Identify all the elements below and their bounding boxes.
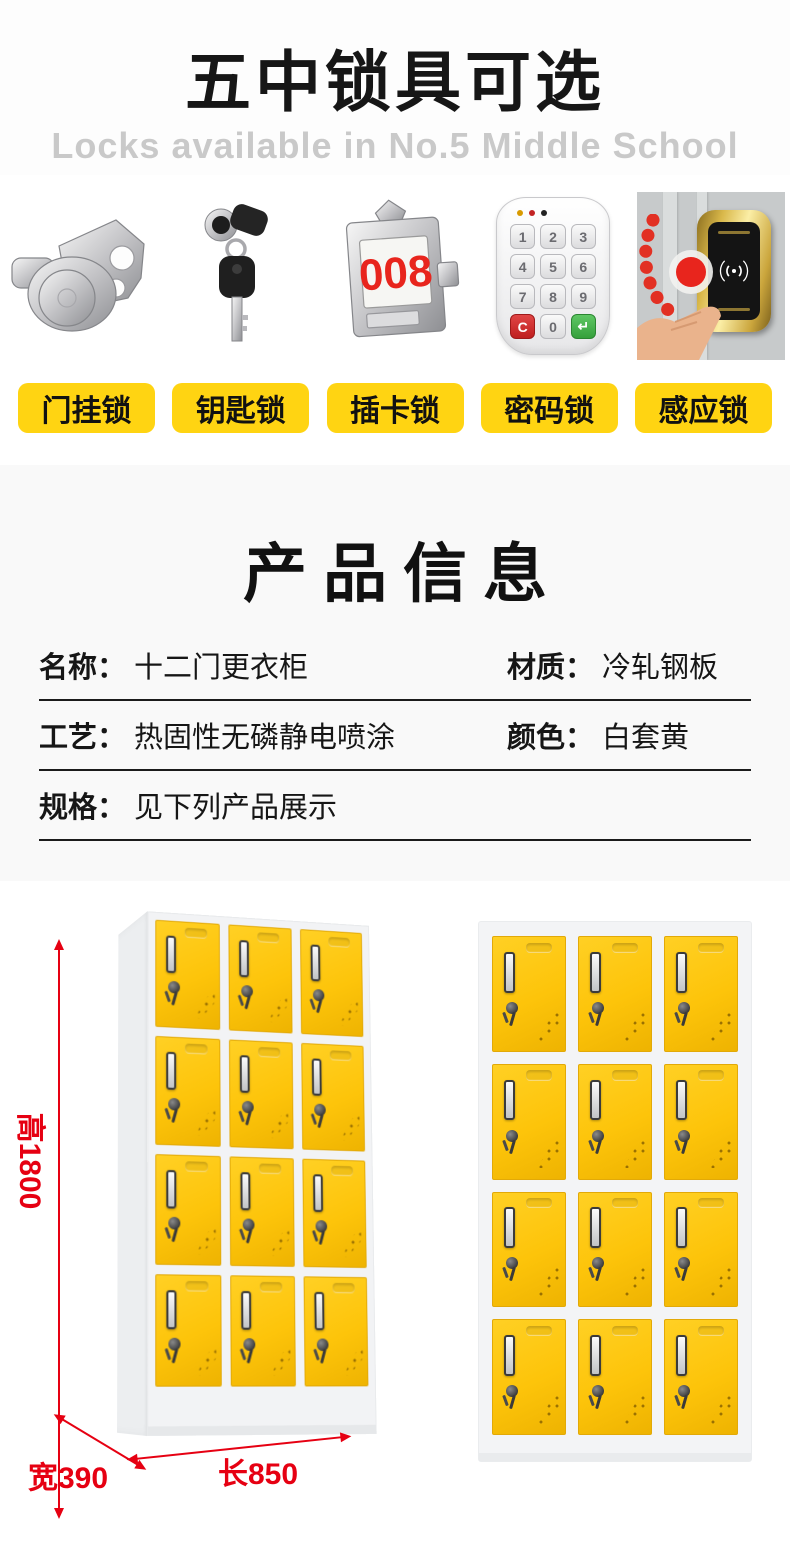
width-dimension-label: 宽390 <box>28 1453 108 1497</box>
lock-option-keypad: 123456789C0↵ <box>474 176 632 376</box>
locker-door <box>578 1064 652 1180</box>
locker-cabinet-3d <box>132 923 356 1434</box>
vent-holes <box>623 1266 646 1296</box>
locker-door <box>155 1036 220 1147</box>
name-card-slot <box>166 1051 176 1090</box>
key-lock-icon <box>181 199 293 354</box>
vent-holes <box>268 1110 288 1138</box>
door-handle-emboss <box>330 1050 352 1060</box>
info-cell-spec: 规格： 见下列产品展示 <box>39 784 507 826</box>
lock-label-induction: 感应锁 <box>635 383 772 433</box>
lock-option-cam <box>0 176 158 376</box>
info-cell-color: 颜色： 白套黄 <box>507 714 751 756</box>
locker-door <box>304 1276 369 1386</box>
door-handle-emboss <box>612 943 638 953</box>
vent-holes <box>623 1139 646 1169</box>
door-handle-emboss <box>612 1326 638 1336</box>
locker-door <box>155 1274 222 1387</box>
name-card-slot <box>676 1207 688 1248</box>
vent-holes <box>340 1113 360 1141</box>
section-title: 产品信息 <box>0 523 790 615</box>
name-card-slot <box>504 1080 516 1121</box>
door-handle-emboss <box>612 1070 638 1080</box>
door-handle-emboss <box>259 1164 281 1174</box>
lock-option-induction <box>632 176 790 376</box>
vent-holes <box>195 1108 215 1136</box>
table-row: 名称： 十二门更衣柜 材质： 冷轧钢板 <box>39 631 751 701</box>
name-card-slot <box>504 1207 516 1248</box>
keyhole-with-key <box>315 1220 327 1233</box>
locker-door <box>492 936 566 1052</box>
keypad-key: 5 <box>540 254 565 279</box>
vent-holes <box>195 991 215 1019</box>
name-card-slot <box>241 1291 251 1330</box>
lock-label-card: 插卡锁 <box>327 383 464 433</box>
locker-door <box>301 1043 365 1152</box>
page-title: 五中锁具可选 <box>0 0 790 119</box>
name-card-slot <box>314 1291 324 1330</box>
keyhole-with-key <box>314 1104 326 1116</box>
keyhole-with-key <box>242 1101 254 1114</box>
door-handle-emboss <box>186 1161 209 1171</box>
keyhole-with-key <box>592 1002 604 1014</box>
header: 五中锁具可选 Locks available in No.5 Middle Sc… <box>0 0 790 175</box>
locker-door <box>492 1064 566 1180</box>
door-handle-emboss <box>526 1198 552 1208</box>
name-card-slot <box>239 1055 249 1093</box>
locker-door <box>228 924 292 1033</box>
info-value: 冷轧钢板 <box>602 644 718 686</box>
name-card-slot <box>590 1207 602 1248</box>
keypad-indicator-lights <box>517 210 547 216</box>
door-handle-emboss <box>526 943 552 953</box>
locker-door <box>155 1154 221 1266</box>
lock-labels-row: 门挂锁 钥匙锁 插卡锁 密码锁 感应锁 <box>0 377 790 439</box>
keyhole-with-key <box>168 981 180 994</box>
keypad-key: 1 <box>510 224 535 249</box>
keypad-lock-icon: 123456789C0↵ <box>496 197 610 355</box>
locker-door <box>664 1319 738 1435</box>
door-handle-emboss <box>698 1326 724 1336</box>
vent-holes <box>537 1139 560 1169</box>
keyhole-with-key <box>592 1385 604 1397</box>
vent-holes <box>709 1011 732 1041</box>
vent-holes <box>709 1139 732 1169</box>
keypad-key: 7 <box>510 284 535 309</box>
locker-door <box>229 1039 294 1149</box>
locker-door <box>664 1064 738 1180</box>
table-row: 工艺： 热固性无磷静电喷涂 颜色： 白套黄 <box>39 701 751 771</box>
door-handle-emboss <box>333 1283 355 1293</box>
lock-option-card: 008 <box>316 176 474 376</box>
product-page: 五中锁具可选 Locks available in No.5 Middle Sc… <box>0 0 790 1567</box>
door-handle-emboss <box>185 928 207 939</box>
height-dimension-label: 高1800 <box>11 1076 55 1246</box>
door-handle-emboss <box>526 1070 552 1080</box>
locker-door <box>230 1275 296 1386</box>
vent-holes <box>709 1394 732 1424</box>
card-lock-icon: 008 <box>320 192 470 360</box>
door-handle-emboss <box>526 1326 552 1336</box>
keyhole-with-key <box>242 1219 254 1232</box>
info-value: 热固性无磷静电喷涂 <box>134 714 395 756</box>
name-card-slot <box>166 1290 176 1330</box>
keypad-key: 8 <box>540 284 565 309</box>
info-label: 工艺： <box>39 714 126 756</box>
keyhole-with-key <box>168 1217 180 1230</box>
keypad-keys: 123456789C0↵ <box>510 224 596 339</box>
keyhole-with-key <box>316 1339 328 1352</box>
product-info-section: 产品信息 名称： 十二门更衣柜 材质： 冷轧钢板 工艺： 热固性无磷静电喷涂 颜… <box>0 465 790 881</box>
info-value: 十二门更衣柜 <box>134 644 308 686</box>
keyhole-with-key <box>678 1385 690 1397</box>
name-card-slot <box>504 1335 516 1376</box>
length-dimension-label: 长850 <box>218 1449 298 1493</box>
name-card-slot <box>590 1080 602 1121</box>
locker-door <box>578 936 652 1052</box>
door-handle-emboss <box>332 1166 354 1176</box>
name-card-slot <box>590 1335 602 1376</box>
keyhole-with-key <box>168 1338 180 1351</box>
locker-door <box>155 920 220 1030</box>
name-card-slot <box>311 1058 321 1096</box>
cabinet-side-panel <box>117 911 147 1436</box>
keyhole-with-key <box>168 1098 180 1111</box>
vent-holes <box>343 1348 363 1376</box>
info-label: 名称： <box>39 644 126 686</box>
info-label: 材质： <box>507 644 594 686</box>
keyhole-with-key <box>592 1130 604 1142</box>
door-handle-emboss <box>185 1044 208 1055</box>
vent-holes <box>196 1347 217 1376</box>
right-cabinet-figure <box>478 921 752 1462</box>
door-handle-emboss <box>698 1198 724 1208</box>
name-card-slot <box>590 952 602 993</box>
locker-door <box>302 1159 366 1268</box>
keyhole-with-key <box>241 985 253 998</box>
vent-holes <box>195 1226 215 1255</box>
lock-option-key <box>158 176 316 376</box>
keypad-key: 9 <box>571 284 596 309</box>
keypad-key: 3 <box>571 224 596 249</box>
vent-holes <box>537 1266 560 1296</box>
door-handle-emboss <box>329 937 351 948</box>
locker-door <box>578 1192 652 1308</box>
keypad-key: ↵ <box>571 314 596 339</box>
left-cabinet-figure <box>128 925 368 1485</box>
card-lock-number: 008 <box>357 246 434 300</box>
left-cabinet-doors <box>155 920 368 1387</box>
locker-door <box>492 1319 566 1435</box>
vent-holes <box>623 1394 646 1424</box>
vent-holes <box>537 1394 560 1424</box>
info-label: 颜色： <box>507 714 594 756</box>
keyhole-with-key <box>678 1257 690 1269</box>
height-dimension-arrow <box>58 945 60 1513</box>
right-cabinet-doors <box>492 936 738 1435</box>
keypad-key: 0 <box>540 314 565 339</box>
name-card-slot <box>166 1169 176 1208</box>
lock-options-row: 008 123456789C0↵ <box>0 175 790 377</box>
vent-holes <box>267 995 287 1023</box>
keyhole-with-key <box>506 1002 518 1014</box>
vent-holes <box>537 1011 560 1041</box>
vent-holes <box>269 1228 289 1256</box>
door-handle-emboss <box>258 932 280 943</box>
lock-label-cam: 门挂锁 <box>18 383 155 433</box>
locker-door <box>578 1319 652 1435</box>
name-card-slot <box>239 940 249 978</box>
name-card-slot <box>504 952 516 993</box>
door-handle-emboss <box>186 1281 209 1291</box>
cam-lock-icon <box>4 206 154 346</box>
cabinet-front-panel <box>147 911 377 1436</box>
door-handle-emboss <box>260 1282 283 1292</box>
info-cell-craft: 工艺： 热固性无磷静电喷涂 <box>39 714 507 756</box>
keyhole-with-key <box>312 989 323 1001</box>
name-card-slot <box>676 1080 688 1121</box>
name-card-slot <box>313 1174 323 1212</box>
keyhole-with-key <box>678 1002 690 1014</box>
door-handle-emboss <box>698 1070 724 1080</box>
keyhole-with-key <box>243 1338 255 1351</box>
locker-door <box>300 929 363 1037</box>
name-card-slot <box>166 935 176 973</box>
locker-door <box>664 1192 738 1308</box>
vent-holes <box>339 999 359 1027</box>
name-card-slot <box>240 1172 250 1211</box>
keypad-key: C <box>510 314 535 339</box>
page-subtitle: Locks available in No.5 Middle School <box>0 125 790 167</box>
name-card-slot <box>676 1335 688 1376</box>
lock-label-key: 钥匙锁 <box>172 383 309 433</box>
keypad-key: 2 <box>540 224 565 249</box>
keyhole-with-key <box>506 1385 518 1397</box>
name-card-slot <box>310 944 320 981</box>
keyhole-with-key <box>506 1130 518 1142</box>
info-value: 见下列产品展示 <box>134 784 337 826</box>
locker-door <box>492 1192 566 1308</box>
hand <box>637 300 733 360</box>
door-handle-emboss <box>259 1047 281 1057</box>
keyhole-with-key <box>678 1130 690 1142</box>
name-card-slot <box>676 952 688 993</box>
product-info-table: 名称： 十二门更衣柜 材质： 冷轧钢板 工艺： 热固性无磷静电喷涂 颜色： 白套… <box>39 631 751 841</box>
keyhole-with-key <box>506 1257 518 1269</box>
door-handle-emboss <box>698 943 724 953</box>
keypad-key: 6 <box>571 254 596 279</box>
keyhole-with-key <box>592 1257 604 1269</box>
vent-holes <box>270 1347 290 1375</box>
induction-lock-icon <box>637 192 785 360</box>
info-label: 规格： <box>39 784 126 826</box>
lock-label-keypad: 密码锁 <box>481 383 618 433</box>
info-cell-material: 材质： 冷轧钢板 <box>507 644 751 686</box>
product-figures: 高1800 宽390 长850 <box>0 881 790 1567</box>
info-cell-name: 名称： 十二门更衣柜 <box>39 644 507 686</box>
vent-holes <box>623 1011 646 1041</box>
vent-holes <box>342 1229 362 1257</box>
door-handle-emboss <box>612 1198 638 1208</box>
table-row: 规格： 见下列产品展示 <box>39 771 751 841</box>
locker-door <box>230 1156 295 1266</box>
keypad-key: 4 <box>510 254 535 279</box>
locker-door <box>664 936 738 1052</box>
vent-holes <box>709 1266 732 1296</box>
info-value: 白套黄 <box>602 714 689 756</box>
